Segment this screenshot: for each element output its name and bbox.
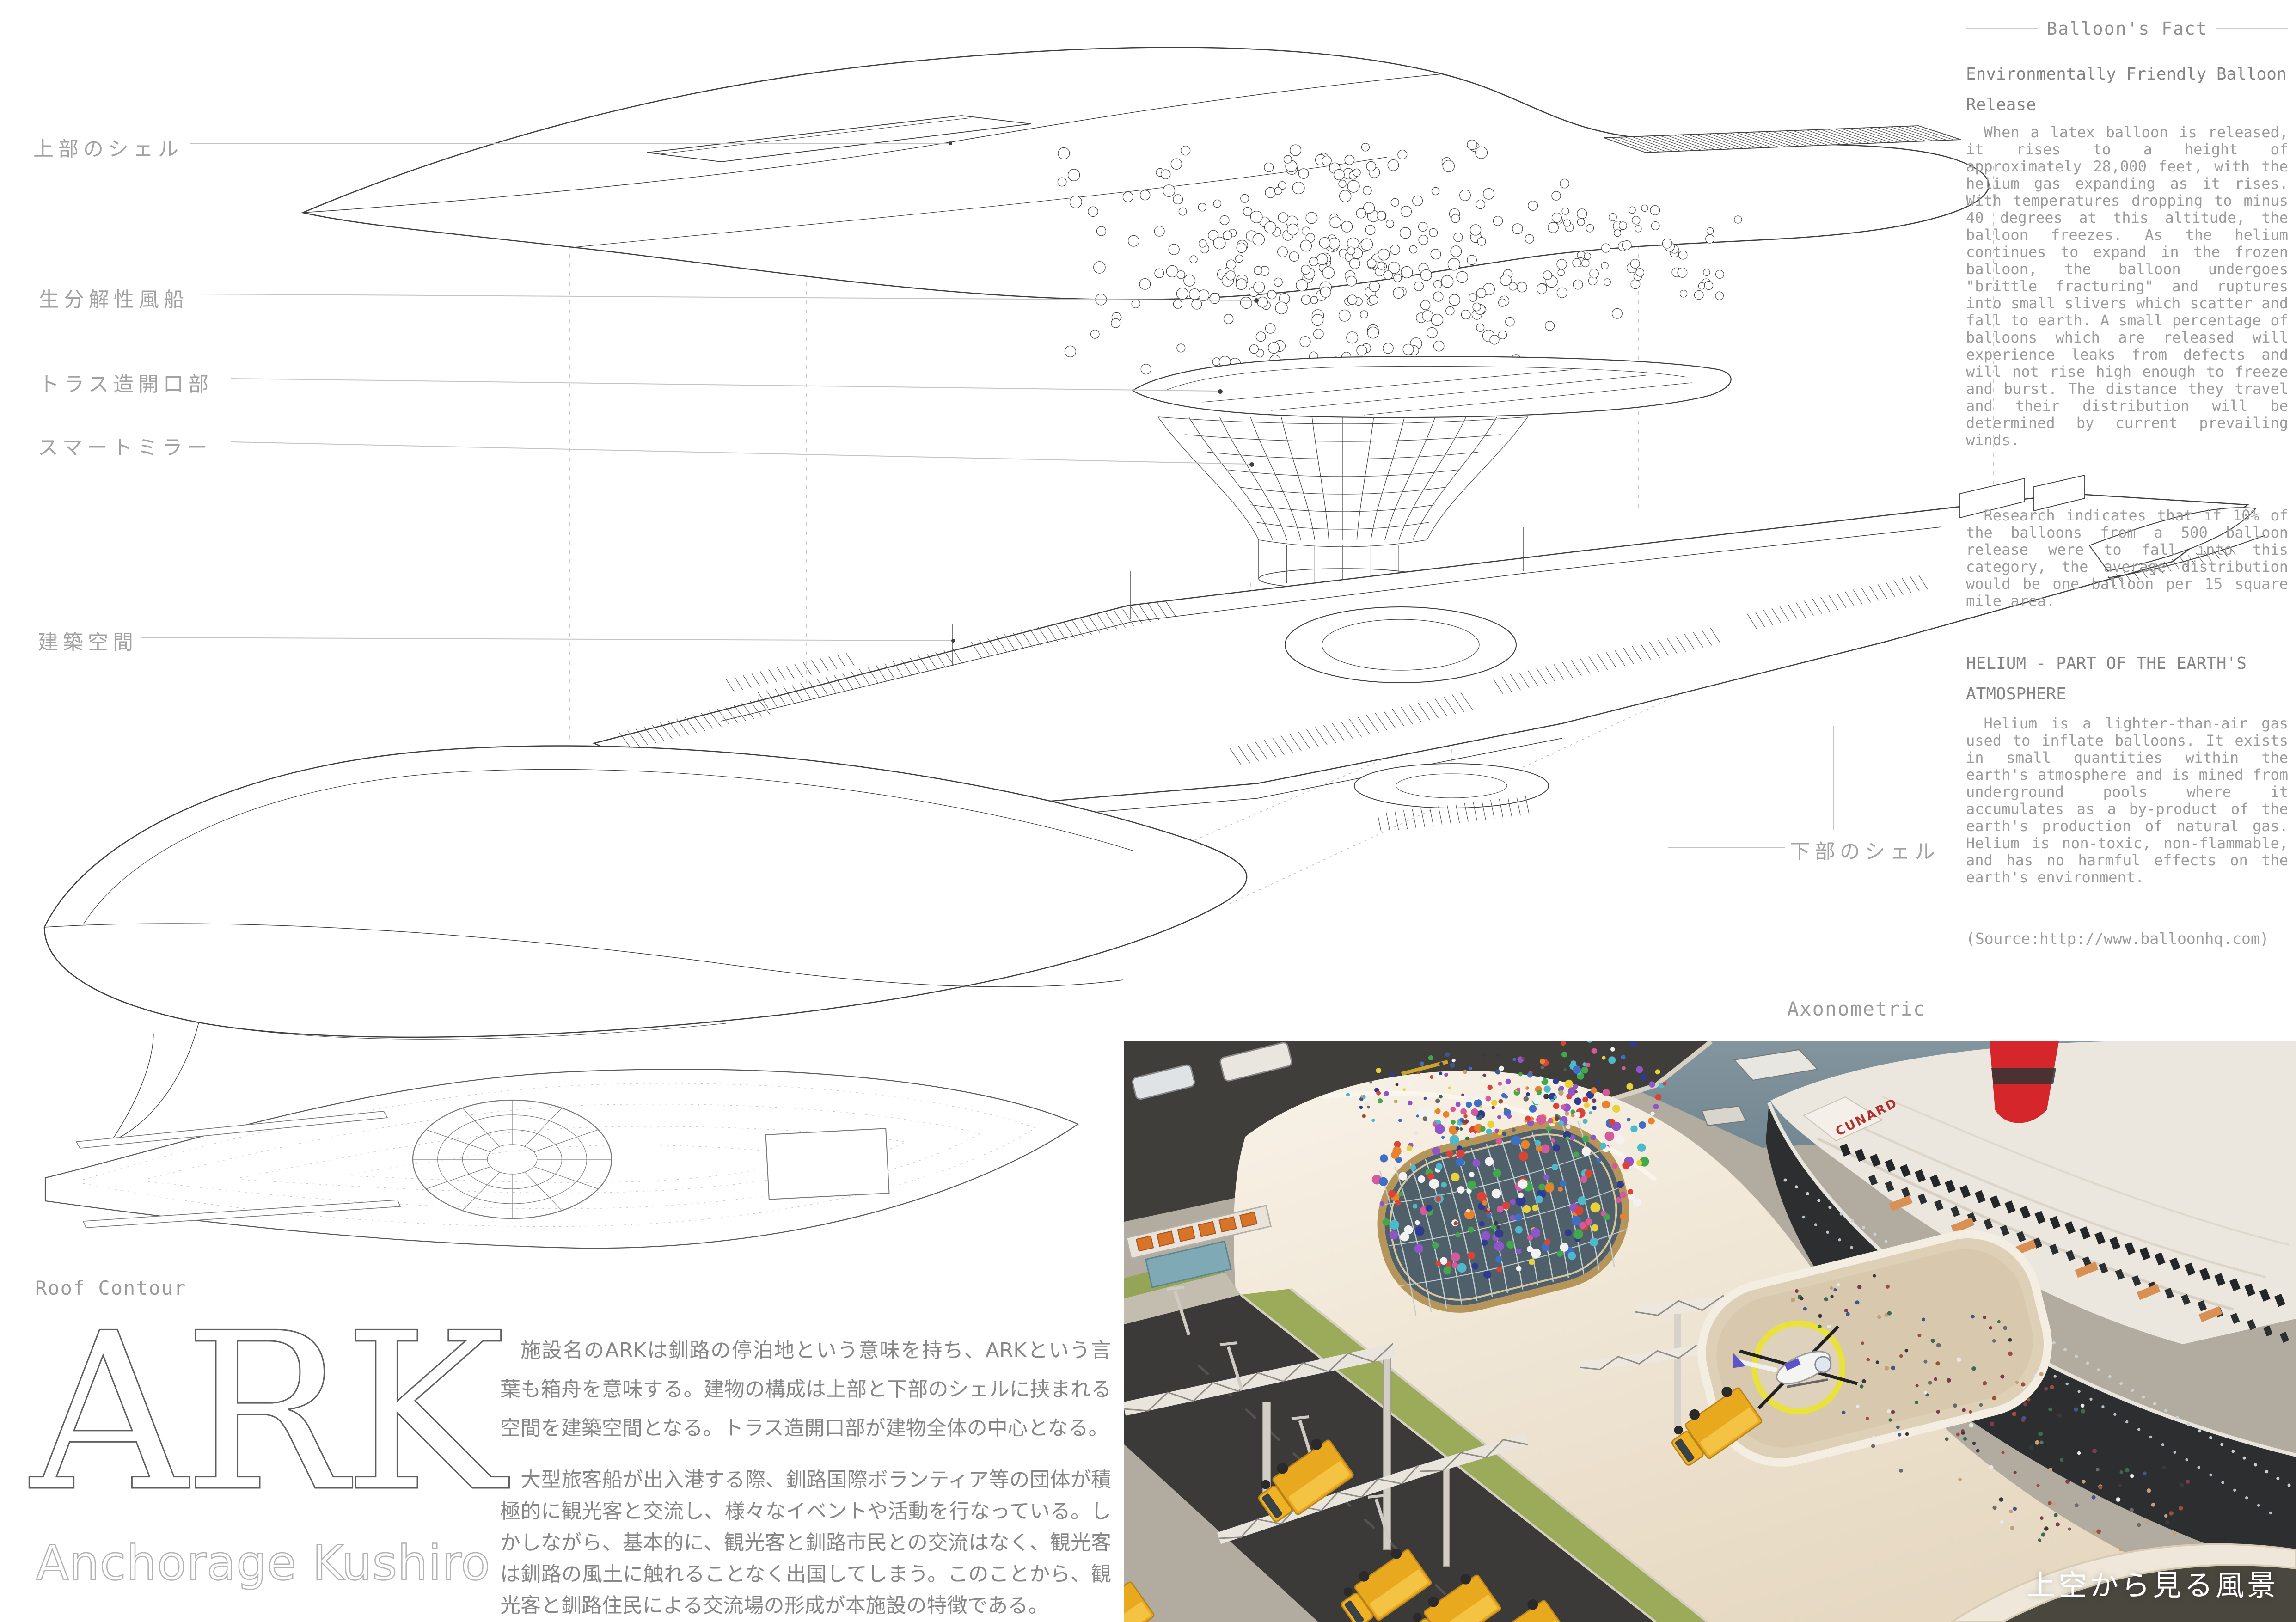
sidebar-header: Balloon's Fact xyxy=(1966,18,2288,39)
project-title: ARK xyxy=(31,1304,502,1522)
facts-sidebar: Balloon's Fact Environmentally Friendly … xyxy=(1966,18,2288,948)
header-rule-right xyxy=(2216,28,2288,29)
label-smart-mirror: スマートミラー xyxy=(38,431,212,460)
truss-funnel-drawing xyxy=(1158,417,1528,589)
header-rule-left xyxy=(1966,28,2038,29)
description-paragraph1: 施設名のARKは釧路の停泊地という意味を持ち、ARKという言葉も箱舟を意味する。… xyxy=(500,1331,1111,1448)
source-note: (Source:http://www.balloonhq.com) xyxy=(1966,930,2288,948)
section1-title: Environmentally Friendly Balloon Release xyxy=(1966,59,2288,120)
upper-shell-drawing xyxy=(303,47,1989,300)
label-lower-shell: 下部のシェル xyxy=(1790,835,1940,864)
section1-paragraph2: Research indicates that if 10% of the ba… xyxy=(1966,507,2288,610)
label-truss-opening: トラス造開口部 xyxy=(39,367,213,397)
sidebar-header-title: Balloon's Fact xyxy=(2046,18,2207,39)
aerial-render: CUNARD xyxy=(1124,1041,2296,1622)
project-description: 施設名のARKは釧路の停泊地という意味を持ち、ARKという言葉も箱舟を意味する。… xyxy=(500,1331,1111,1622)
mirror-disc-drawing xyxy=(1133,356,1731,417)
render-caption: 上空から見る風景 xyxy=(2027,1562,2278,1604)
section2-paragraph1: Helium is a lighter-than-air gas used to… xyxy=(1966,715,2288,886)
label-arch-space: 建築空間 xyxy=(38,625,138,655)
axonometric-caption: Axonometric xyxy=(1787,998,1926,1020)
description-paragraph2: 大型旅客船が出入港する際、釧路国際ボランティア等の団体が積極的に観光客と交流し、… xyxy=(500,1464,1111,1622)
project-subtitle: Anchorage Kushiro xyxy=(36,1536,490,1591)
section2-title: HELIUM - PART OF THE EARTH'S ATMOSPHERE xyxy=(1966,649,2288,710)
label-balloon: 生分解性風船 xyxy=(39,283,189,312)
label-upper-shell: 上部のシェル xyxy=(33,132,183,162)
section1-paragraph1: When a latex balloon is released, it ris… xyxy=(1966,124,2288,449)
presentation-board: { "poster": { "axon_caption": "Axonometr… xyxy=(0,0,2296,1622)
roof-contour-plan xyxy=(45,1069,1078,1248)
